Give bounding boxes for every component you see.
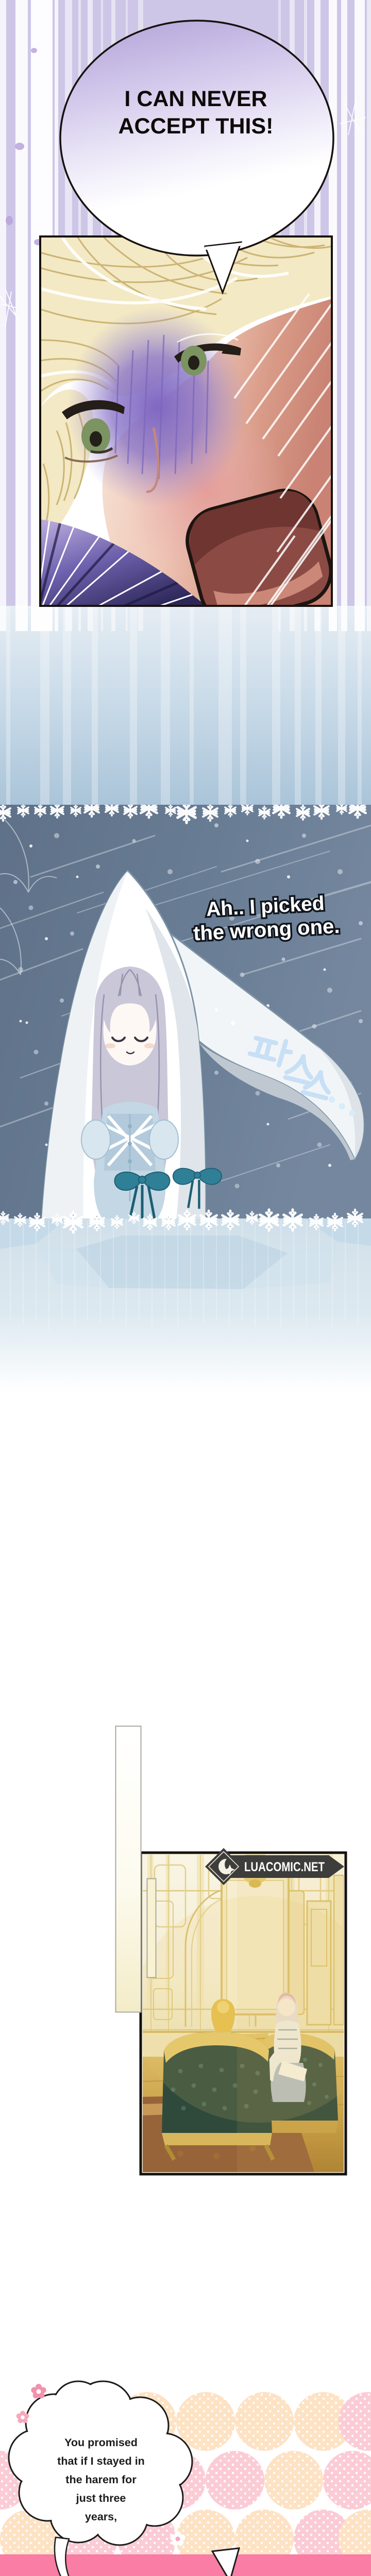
svg-text:years,: years, <box>85 2511 117 2523</box>
svg-text:LUACOMIC.NET: LUACOMIC.NET <box>244 1860 325 1874</box>
svg-text:You promised: You promised <box>64 2436 138 2449</box>
svg-text:that if I stayed in: that if I stayed in <box>57 2455 145 2467</box>
svg-text:just three: just three <box>76 2492 126 2504</box>
svg-text:the harem for: the harem for <box>65 2473 137 2486</box>
svg-text:ACCEPT THIS!: ACCEPT THIS! <box>119 114 274 139</box>
svg-text:I CAN NEVER: I CAN NEVER <box>124 87 267 111</box>
